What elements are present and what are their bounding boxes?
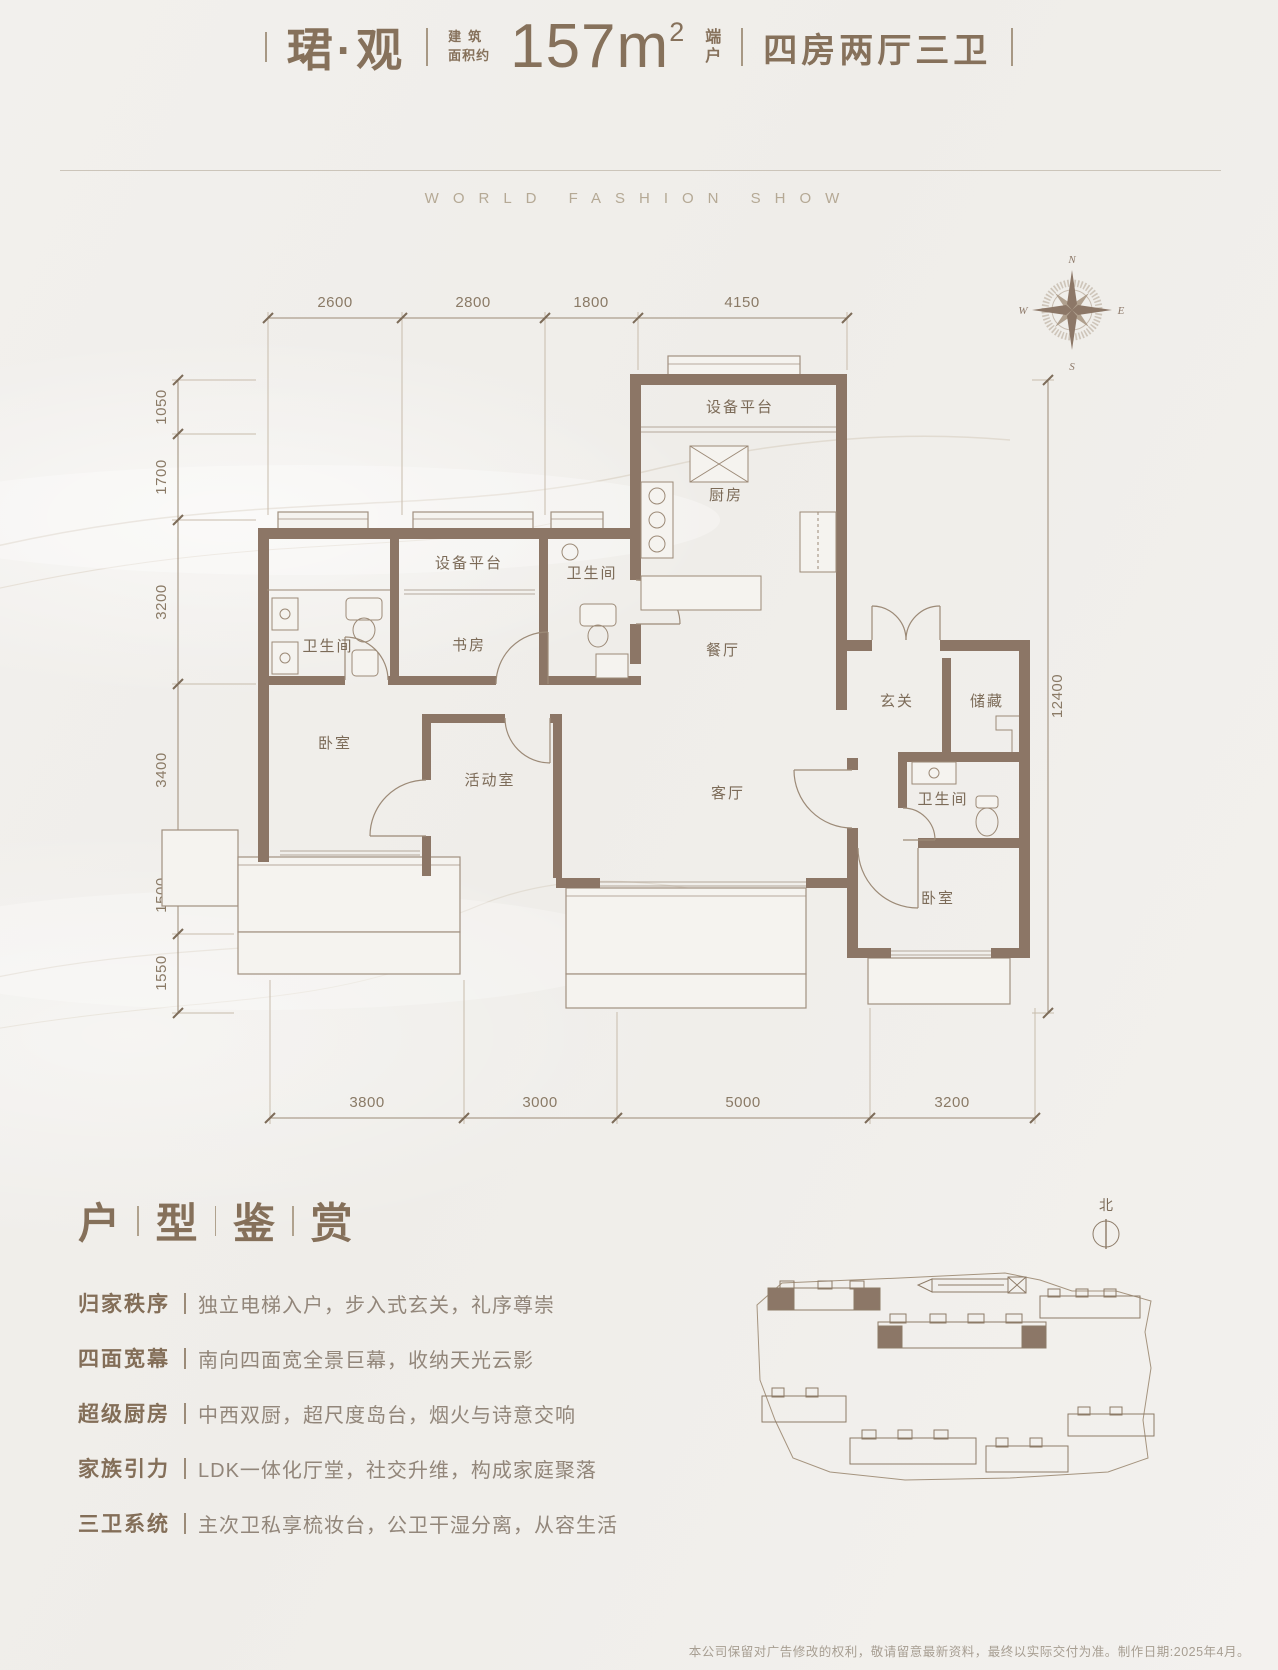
dim-top-2: 2800 [455, 294, 490, 311]
dim-right-1: 12400 [1049, 674, 1066, 718]
area-prefix: 建筑 面积约 [448, 28, 490, 66]
dim-left-4: 3400 [153, 752, 170, 787]
dim-top-3: 1800 [573, 294, 608, 311]
area-prefix-line2: 面积约 [448, 47, 490, 66]
section-title-char: 户 [78, 1190, 120, 1251]
unit-tag: 端 户 [705, 28, 721, 66]
feature-list: 归家秩序 独立电梯入户，步入式玄关，礼序尊崇 四面宽幕 南向四面宽全景巨幕，收纳… [78, 1290, 618, 1565]
dim-top-1: 2600 [317, 294, 352, 311]
sink-icon [272, 598, 298, 630]
feature-description: 主次卫私享梳妆台，公卫干湿分离，从容生活 [198, 1509, 618, 1538]
room-label-bath-right: 卫生间 [917, 791, 968, 808]
poster-page: 珺·观 建筑 面积约 157m2 端 户 四房两厅三卫 WORLD FASHIO… [0, 0, 1278, 1670]
feature-item: 超级厨房 中西双厨，超尺度岛台，烟火与诗意交响 [78, 1400, 618, 1426]
building-outline [762, 1388, 846, 1422]
sink-icon [562, 544, 578, 560]
room-label-foyer: 玄关 [880, 693, 914, 710]
toilet-icon [346, 598, 382, 620]
section-title-char: 型 [156, 1190, 198, 1251]
highlighted-unit [1022, 1326, 1046, 1348]
building-outline [1068, 1407, 1154, 1436]
dim-bottom-4: 3200 [934, 1094, 969, 1111]
area-superscript: 2 [669, 17, 685, 47]
site-plan: 北 [688, 1145, 1253, 1575]
feature-separator [184, 1403, 186, 1424]
feature-label: 四面宽幕 [78, 1343, 170, 1373]
building-highlighted [768, 1281, 880, 1310]
room-label-bedroom-right: 卧室 [921, 890, 955, 907]
header-divider [741, 28, 743, 66]
header-divider [265, 32, 267, 62]
sink-icon [912, 762, 956, 784]
island-counter [641, 576, 761, 610]
section-title-char: 鉴 [233, 1190, 275, 1251]
highlighted-unit [768, 1288, 794, 1310]
feature-separator [184, 1458, 186, 1479]
room-label-dining: 餐厅 [706, 642, 740, 659]
feature-separator [184, 1293, 186, 1314]
site-axis-marker [918, 1277, 1026, 1293]
room-label-kitchen: 厨房 [709, 487, 743, 504]
room-label-living: 客厅 [711, 785, 745, 802]
title-divider [137, 1206, 139, 1236]
compass-e-label: E [1117, 305, 1125, 317]
header-divider [426, 28, 428, 66]
feature-separator [184, 1348, 186, 1369]
room-label-activity: 活动室 [464, 772, 515, 789]
building-outline [986, 1438, 1068, 1472]
dim-left-1: 1050 [153, 389, 170, 424]
dim-bottom-3: 5000 [725, 1094, 760, 1111]
feature-description: 独立电梯入户，步入式玄关，礼序尊崇 [198, 1289, 555, 1318]
room-label-storage: 储藏 [970, 693, 1004, 710]
building-highlighted [878, 1314, 1046, 1348]
feature-description: 南向四面宽全景巨幕，收纳天光云影 [198, 1344, 534, 1373]
room-labels: 设备平台 厨房 卫生间 设备平台 卫生间 书房 餐厅 玄关 储藏 卧室 活动室 … [302, 399, 1004, 907]
feature-description: LDK一体化厅堂，社交升维，构成家庭聚落 [198, 1454, 597, 1483]
title-divider [215, 1206, 217, 1236]
feature-item: 归家秩序 独立电梯入户，步入式玄关，礼序尊崇 [78, 1290, 618, 1316]
title-divider [292, 1206, 294, 1236]
building-outline [850, 1430, 976, 1464]
north-indicator: 北 [1093, 1197, 1119, 1249]
stove-icon [641, 482, 673, 558]
feature-item: 家族引力 LDK一体化厅堂，社交升维，构成家庭聚落 [78, 1455, 618, 1481]
unit-tag-line1: 端 [705, 28, 721, 47]
header-divider [1011, 28, 1013, 66]
layout-description: 四房两厅三卫 [763, 23, 991, 72]
header: 珺·观 建筑 面积约 157m2 端 户 四房两厅三卫 [0, 14, 1278, 80]
room-label-study: 书房 [452, 637, 486, 654]
section-title-char: 赏 [311, 1190, 353, 1251]
sink-icon [596, 654, 628, 678]
subtitle: WORLD FASHION SHOW [0, 190, 1278, 207]
room-label-bedroom-left: 卧室 [318, 735, 352, 752]
feature-label: 归家秩序 [78, 1288, 170, 1318]
feature-label: 三卫系统 [78, 1508, 170, 1538]
area-prefix-line1: 建筑 [448, 28, 490, 47]
unit-tag-line2: 户 [705, 47, 721, 66]
area-number: 157m [510, 12, 669, 81]
sink-icon [272, 642, 298, 674]
highlighted-unit [878, 1326, 902, 1348]
site-boundary [757, 1273, 1151, 1480]
room-label-bath-master: 卫生间 [302, 638, 353, 655]
horizontal-rule [60, 170, 1221, 171]
dim-left-3: 3200 [153, 584, 170, 619]
toilet-icon [580, 604, 616, 626]
storage-shelf [996, 716, 1019, 752]
area-value: 157m2 [510, 16, 685, 78]
vanity-stool [352, 650, 378, 676]
section-title: 户 型 鉴 赏 [78, 1190, 353, 1251]
highlighted-unit [854, 1288, 880, 1310]
toilet-icon [976, 796, 998, 808]
feature-description: 中西双厨，超尺度岛台，烟火与诗意交响 [198, 1399, 576, 1428]
room-label-equip-top: 设备平台 [706, 399, 774, 416]
site-buildings [762, 1281, 1154, 1472]
dim-bottom-1: 3800 [349, 1094, 384, 1111]
feature-label: 超级厨房 [78, 1398, 170, 1428]
dim-top-4: 4150 [724, 294, 759, 311]
room-label-equip-mid: 设备平台 [435, 555, 503, 572]
feature-label: 家族引力 [78, 1453, 170, 1483]
footer-disclaimer: 本公司保留对广告修改的权利，敬请留意最新资料，最终以实际交付为准。制作日期:20… [689, 1641, 1250, 1660]
feature-item: 四面宽幕 南向四面宽全景巨幕，收纳天光云影 [78, 1345, 618, 1371]
north-label: 北 [1099, 1197, 1113, 1213]
dim-left-6: 1550 [153, 955, 170, 990]
project-name: 珺·观 [287, 14, 406, 80]
feature-item: 三卫系统 主次卫私享梳妆台，公卫干湿分离，从容生活 [78, 1510, 618, 1536]
dim-bottom-2: 3000 [522, 1094, 557, 1111]
feature-separator [184, 1513, 186, 1534]
floor-plan: 2600 2800 1800 4150 1050 1700 3200 3400 … [130, 258, 1085, 1143]
room-label-bath-small: 卫生间 [566, 565, 617, 582]
dim-left-2: 1700 [153, 459, 170, 494]
